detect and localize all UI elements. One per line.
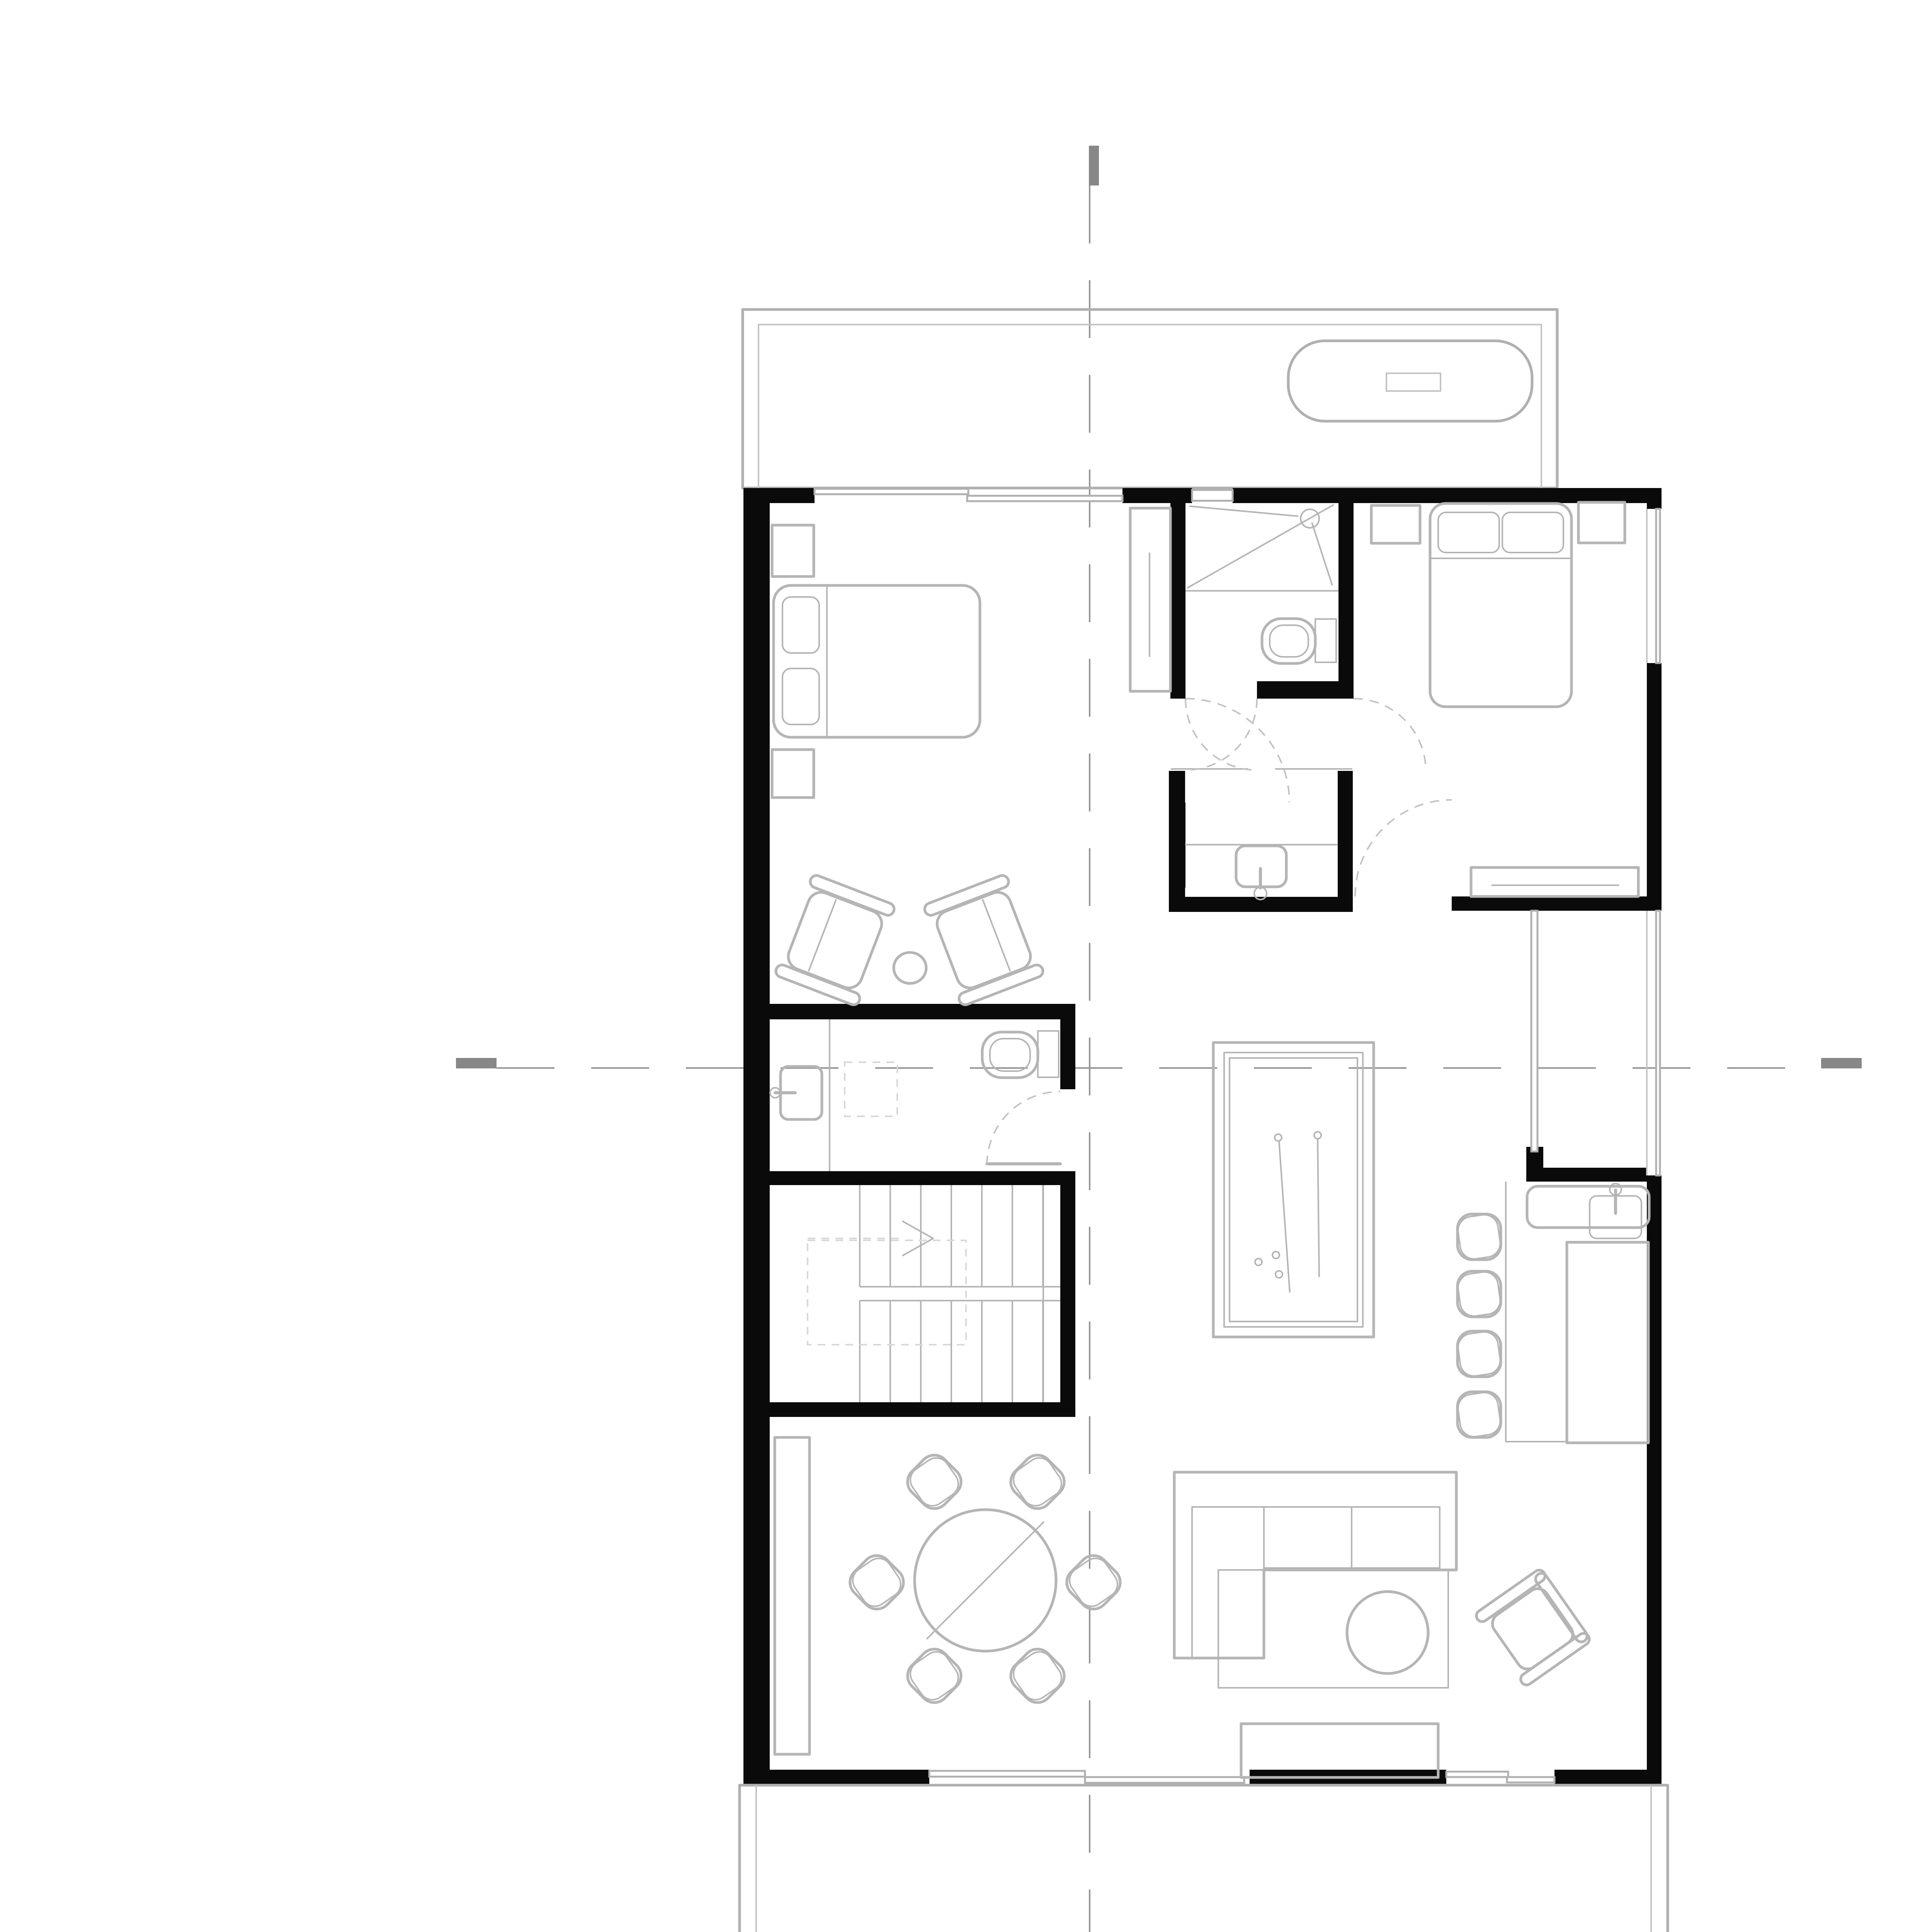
toilet-room-door-arc-1 [1185,699,1257,770]
sofa-chaise-cushion [1192,1507,1264,1658]
wall-top-b [1122,488,1192,503]
dining-area [775,1437,1128,1754]
armchair-1 [774,874,896,1007]
coffee-table [1347,1592,1428,1673]
terrace-outline [743,310,1557,488]
powder-vestibule [1171,769,1352,900]
bathroom [770,1019,1060,1171]
stair-direction-arrow [902,1221,933,1256]
bar-stool-1 [1456,1213,1502,1260]
stair-treads-upper [860,1185,1043,1287]
wall-bottom-c [1554,1770,1662,1785]
bathroom-door-arc [987,1092,1060,1165]
window-top-panel-2 [967,496,1122,501]
cue-stick-1 [1279,1141,1290,1293]
cue-tip-2 [1314,1132,1321,1139]
bed-1-pillow-2 [782,668,819,724]
wall-toilet-bottom [1257,681,1354,699]
dressing-door-arc [1355,800,1452,896]
wall-bathroom-right [1060,1019,1075,1089]
bed-2-pillow-2 [1502,512,1563,553]
bedroom-2-door-arc [1354,699,1426,771]
jacuzzi-step [1386,373,1440,391]
lower-terrace [740,1785,1668,1932]
dining-chair-6 [1003,1642,1072,1710]
window-top-panel-1 [815,489,968,494]
terrace-inner-line [759,325,1541,488]
bed-2 [1430,503,1571,707]
window-right-1 [1656,509,1660,663]
sofa-cushion-2 [1352,1507,1440,1568]
slider-living-panel-2 [1507,1777,1554,1782]
dining-chair-5 [900,1642,969,1710]
ceiling-shower-dashed [845,1062,897,1116]
dining-chair-4 [1060,1548,1128,1617]
wall-top-c [1233,488,1662,503]
jacuzzi [1288,341,1532,421]
bar-stool-3 [1456,1330,1502,1378]
pool-table-rail [1224,1053,1363,1327]
bedroom-1 [772,508,1170,1007]
wall-vestibule-right [1338,771,1353,912]
axis-tick-left [456,1058,497,1068]
toilet-room-door-arc-2 [1185,699,1257,770]
armchair-2 [923,874,1044,1007]
wall-left [743,488,770,1785]
pool-table [1213,1043,1374,1337]
dining-table-split-line [927,1522,1044,1639]
wall-kitchen [1526,1168,1647,1182]
billiard-ball-3 [1276,1271,1282,1278]
wall-bathroom-bottom [770,1171,1075,1185]
dining-chair-3 [843,1548,911,1617]
wall-right-b [1647,663,1662,911]
lower-terrace-outline [740,1785,1668,1932]
window-shower [1192,490,1233,501]
bedroom-2 [1371,502,1638,1151]
wall-stair-bottom [770,1402,1075,1417]
bar-overhang-edge [1506,1182,1567,1442]
staircase [808,1185,1060,1402]
living-area [1174,1472,1592,1777]
stair-void-dashed [808,1240,966,1345]
toilet-1-tank [1315,619,1336,662]
kitchen [1456,1182,1649,1443]
upper-terrace [743,310,1557,488]
floor-plan-page: 5 1 0 [0,0,1932,1932]
slider-living-panel-1 [1446,1772,1508,1777]
toilet-2-seat [990,1039,1030,1071]
sectional-sofa [1174,1472,1456,1658]
billiard-ball-1 [1255,1259,1262,1265]
bed-1 [774,585,980,737]
walls [743,488,1662,1785]
floor-plan-drawing: 5 1 0 [0,0,1932,1932]
wall-bedroom1-divider [1170,503,1185,699]
bedroom-1-door-arc [1185,699,1289,803]
bed-1-pillow-1 [782,597,819,653]
lounge-chair [1474,1568,1592,1687]
toilet-1-seat [1270,625,1308,657]
wall-bathroom-top [770,1004,1075,1019]
slider-dining-panel-1 [929,1771,1085,1777]
kitchen-counter [1527,1186,1649,1228]
stair-treads-lower [860,1301,1043,1402]
slider-dining-panel-2 [1085,1777,1244,1783]
shower-room [1185,505,1338,663]
rug [1218,1570,1448,1688]
wall-bottom-a [743,1770,929,1785]
wall-shower-right [1338,503,1354,699]
cue-stick-2 [1318,1138,1319,1277]
bed-2-pillow-1 [1438,512,1499,553]
wall-stair-right [1060,1171,1075,1402]
stair-landing [860,1287,1060,1301]
sofa-cushion-1 [1264,1507,1352,1568]
billiard-ball-2 [1272,1252,1279,1259]
shower-fan-lines [1187,505,1334,588]
pool-table-outer [1213,1043,1374,1337]
kitchen-island [1567,1242,1648,1443]
dining-chair-2 [1003,1448,1072,1516]
nightstand-2 [772,750,814,798]
toilet-2-tank [1038,1031,1059,1077]
bar-stool-2 [1456,1270,1502,1318]
lower-terrace-side-lines [756,1785,1651,1932]
window-right-2 [1656,911,1660,1175]
tv-console [1241,1724,1438,1777]
wall-right-a [1647,488,1662,509]
wall-bedroom2-bottom [1452,896,1662,911]
bar-stool-4 [1456,1391,1502,1438]
axis-tick-right [1821,1058,1862,1068]
axis-tick-top [1089,146,1099,185]
desk [1471,867,1638,896]
nightstand-1 [772,525,814,577]
dining-chair-1 [900,1448,969,1516]
corridor-partition [1531,911,1537,1151]
cue-tip-1 [1275,1134,1282,1141]
pool-table-felt [1230,1058,1357,1321]
wall-bedroom1-lower [1170,803,1185,888]
side-table [894,952,926,983]
closet [1578,502,1625,543]
sideboard [775,1437,810,1754]
shelf [1371,505,1420,543]
